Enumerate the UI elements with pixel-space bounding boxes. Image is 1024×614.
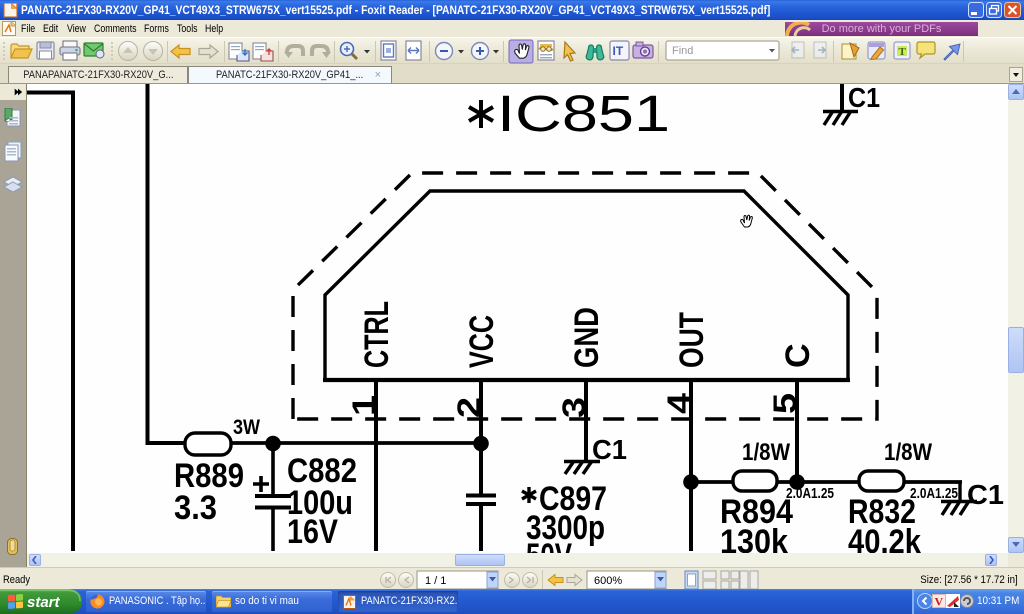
svg-text:1/8W: 1/8W	[742, 439, 790, 466]
svg-text:5: 5	[767, 393, 803, 414]
svg-text:C1: C1	[592, 434, 627, 465]
svg-text:OUT: OUT	[673, 312, 711, 368]
svg-text:IT: IT	[613, 44, 624, 58]
svg-text:50V: 50V	[526, 537, 572, 553]
svg-text:2: 2	[451, 397, 487, 418]
svg-text:1/8W: 1/8W	[884, 439, 932, 466]
svg-text:4: 4	[661, 393, 697, 414]
svg-text:1 / 1: 1 / 1	[425, 575, 446, 587]
svg-text:Find: Find	[672, 45, 693, 57]
svg-text:130k: 130k	[720, 523, 788, 553]
svg-text:40.2k: 40.2k	[848, 523, 921, 553]
svg-text:2.0A1.25: 2.0A1.25	[910, 485, 958, 502]
svg-text:600%: 600%	[594, 575, 622, 587]
svg-text:3: 3	[556, 397, 592, 418]
svg-text:start: start	[27, 594, 61, 611]
svg-text:CTRL: CTRL	[358, 301, 396, 368]
svg-text:T: T	[899, 46, 907, 58]
svg-text:3.3: 3.3	[174, 489, 217, 527]
svg-text:C1: C1	[967, 479, 1004, 510]
svg-text:3W: 3W	[233, 416, 260, 439]
svg-text:V: V	[935, 595, 944, 609]
svg-text:VCC: VCC	[463, 315, 501, 368]
svg-text:IC851: IC851	[497, 85, 670, 142]
svg-text:C1: C1	[848, 84, 880, 113]
svg-text:1: 1	[346, 395, 382, 416]
svg-text:GND: GND	[568, 307, 606, 368]
svg-text:C: C	[779, 343, 817, 368]
svg-text:16V: 16V	[287, 513, 338, 551]
svg-text:2.0A1.25: 2.0A1.25	[786, 485, 834, 502]
